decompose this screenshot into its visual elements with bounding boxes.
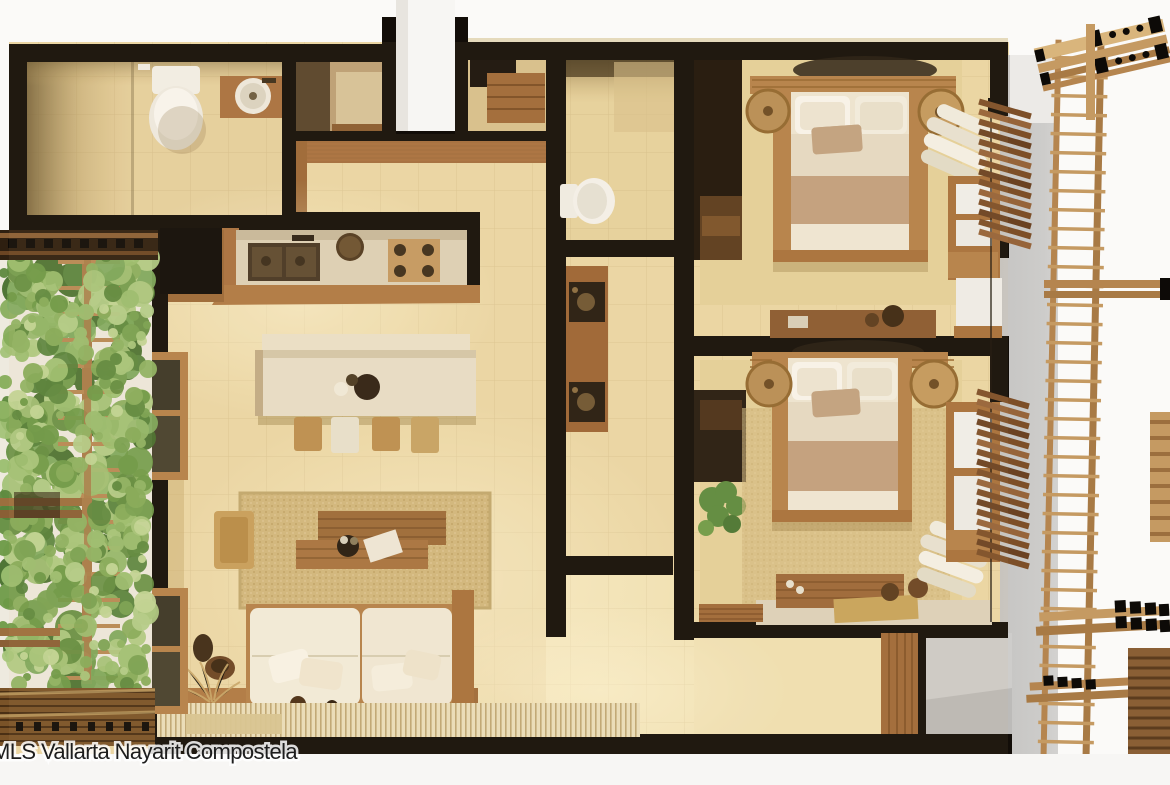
svg-text:MLS Vallarta Nayarit Compostel: MLS Vallarta Nayarit Compostela [0, 739, 298, 764]
